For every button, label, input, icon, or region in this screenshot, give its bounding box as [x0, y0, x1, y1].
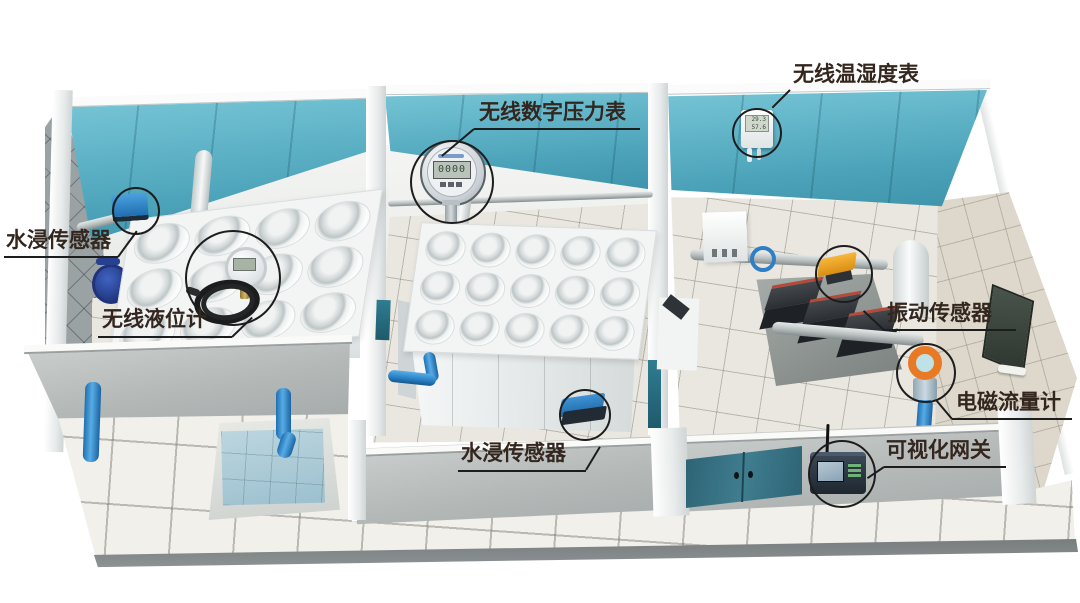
blue-valve-flange: [96, 258, 120, 265]
label-water-immersion-sensor-floor: 水浸传感器: [461, 441, 566, 466]
manifold-drop-pipe: [825, 348, 835, 374]
tank-hole: [593, 317, 636, 351]
leader-line: [98, 336, 232, 338]
callout-circle-pressure-gauge: [410, 140, 494, 224]
teal-wall-vent: [648, 360, 661, 428]
callout-circle-gateway: [808, 440, 876, 508]
tank-hole: [548, 315, 591, 349]
tank-hole: [554, 276, 597, 310]
tank-hole: [604, 238, 647, 272]
callout-circle-water-sensor-left: [112, 187, 160, 235]
leader-line: [952, 418, 1072, 420]
leader-line: [884, 466, 1006, 468]
ceiling-right-room: [665, 85, 987, 210]
label-water-immersion-sensor-left: 水浸传感器: [6, 228, 111, 253]
tank-hole: [464, 272, 507, 306]
tank-hole: [503, 314, 546, 348]
callout-circle-water-sensor-floor: [559, 389, 611, 441]
callout-circle-vibration: [815, 245, 873, 303]
manifold-drop-pipe: [865, 358, 875, 384]
callout-circle-temp-humidity: [732, 108, 782, 158]
label-vibration-sensor: 振动传感器: [887, 301, 992, 326]
callout-circle-flowmeter: [896, 343, 956, 403]
tank-hole: [559, 236, 602, 270]
tank-hole: [299, 290, 358, 335]
column-front-right-end: [998, 407, 1037, 505]
label-visualization-gateway: 可视化网关: [886, 438, 991, 463]
tank-hole: [313, 199, 372, 244]
label-wireless-digital-pressure-gauge: 无线数字压力表: [479, 100, 626, 125]
pump-room-illustration: 0000 29.3 57.6: [0, 0, 1080, 603]
tank-hole: [424, 231, 467, 265]
door-handle: [748, 471, 753, 478]
leader-line: [458, 470, 586, 472]
column-front-junction-2: [650, 427, 689, 516]
column-front-junction-1: [348, 420, 366, 520]
manifold-drop-pipe: [785, 338, 795, 364]
middle-water-tank-top: [403, 222, 657, 360]
exterior-drain-pipe: [83, 382, 102, 463]
label-wireless-temp-humidity-meter: 无线温湿度表: [793, 62, 919, 87]
tank-hole: [458, 312, 501, 346]
tank-hole: [306, 244, 365, 289]
leader-line: [4, 256, 118, 258]
door-handle: [734, 472, 739, 479]
tank-hole: [413, 310, 456, 344]
teal-wall-vent: [375, 300, 390, 340]
tank-hole: [469, 233, 512, 267]
cabinet-vents: [712, 249, 740, 257]
label-electromagnetic-flowmeter: 电磁流量计: [956, 390, 1061, 415]
label-wireless-level-gauge: 无线液位计: [102, 307, 207, 332]
leader-line: [474, 128, 640, 130]
tank-hole: [509, 274, 552, 308]
tank-hole: [599, 277, 642, 311]
hand-valve-wheel: [750, 246, 776, 272]
tank-hole: [514, 235, 557, 269]
tank-hole: [419, 271, 462, 305]
basin-water: [221, 429, 325, 506]
leader-line: [884, 329, 1016, 331]
tank-hole: [125, 267, 184, 312]
